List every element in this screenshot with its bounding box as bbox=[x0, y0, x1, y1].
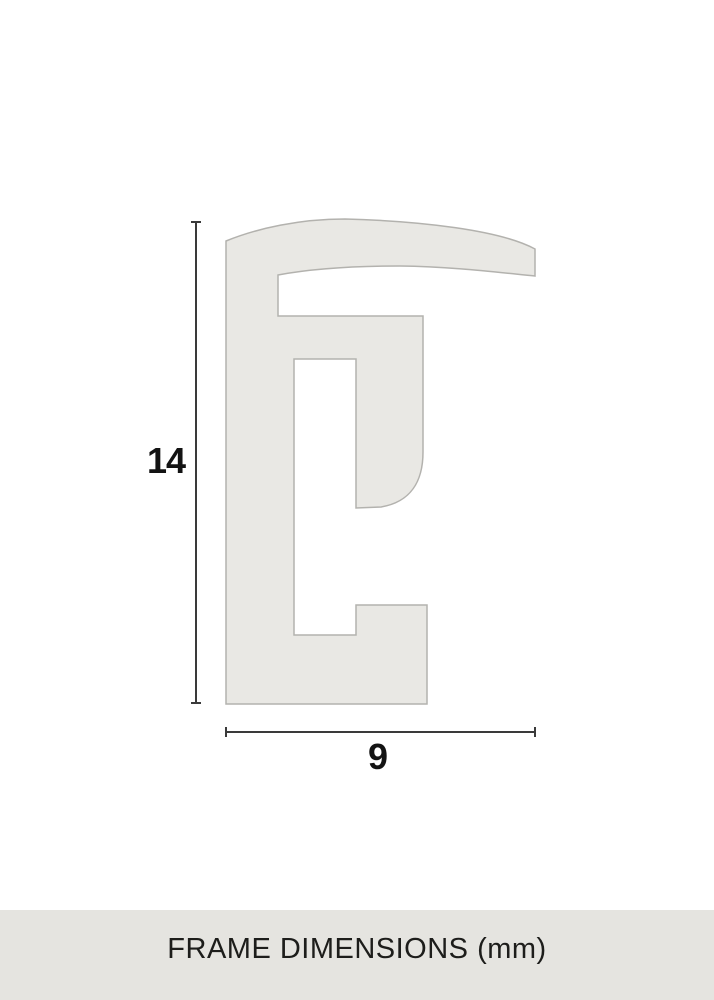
footer-bar: FRAME DIMENSIONS (mm) bbox=[0, 910, 714, 1000]
height-dimension-label: 14 bbox=[147, 443, 185, 479]
height-dimension-line bbox=[191, 222, 201, 703]
width-dimension-label: 9 bbox=[368, 739, 388, 775]
footer-caption: FRAME DIMENSIONS (mm) bbox=[167, 933, 546, 966]
page: { "diagram": { "height_label": "14", "wi… bbox=[0, 0, 714, 1000]
frame-profile-shape bbox=[226, 219, 535, 704]
frame-profile-diagram bbox=[0, 0, 714, 1000]
